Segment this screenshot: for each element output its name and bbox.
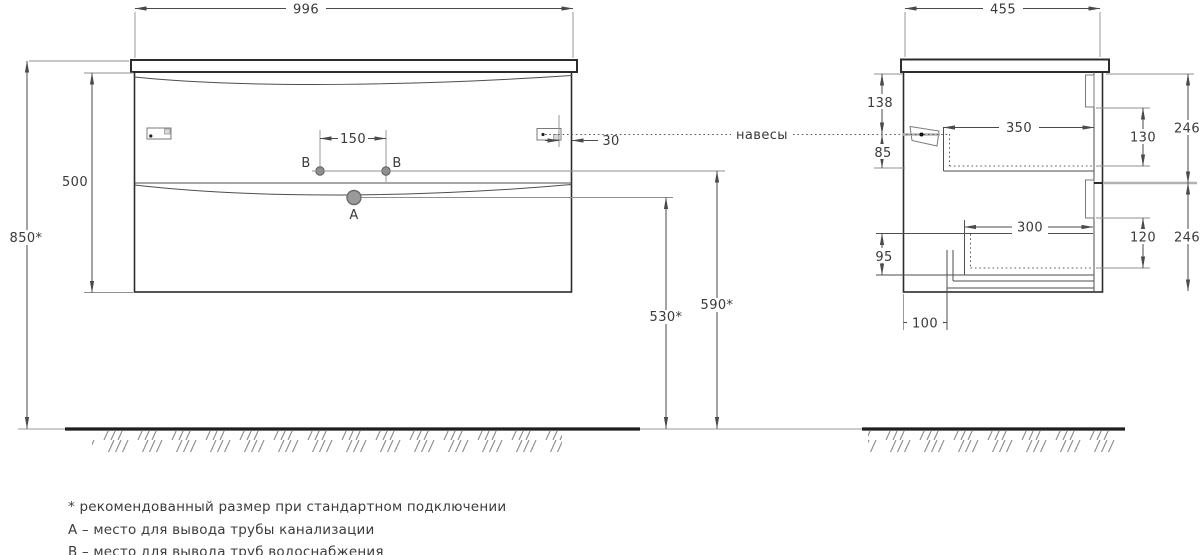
svg-text:530*: 530* [650, 310, 683, 325]
hole-b-left-label: B [301, 156, 310, 171]
hangers-centerline: навесы [545, 128, 903, 143]
hole-b-right-label: B [392, 156, 401, 171]
svg-text:138: 138 [867, 96, 893, 111]
svg-text:850*: 850* [10, 231, 43, 246]
dim-bottom-zone: 95 [867, 234, 900, 276]
svg-text:590*: 590* [701, 298, 734, 313]
dim-upper-front-height: 246 [1106, 74, 1200, 183]
dim-cabinet-height: 500 [62, 73, 133, 293]
footnote-recommended-size: * рекомендованный размер при стандартном… [68, 499, 506, 515]
svg-text:95: 95 [875, 250, 892, 265]
floor-hatching-right [868, 431, 1118, 452]
dim-hanger-drop: 85 [866, 135, 905, 168]
svg-text:150: 150 [340, 132, 366, 147]
hangers-label: навесы [736, 128, 788, 143]
svg-text:350: 350 [1006, 121, 1032, 136]
svg-text:246: 246 [1174, 122, 1200, 137]
svg-text:996: 996 [293, 3, 319, 18]
footnote-a-drain: А – место для вывода трубы канализации [68, 522, 374, 538]
vanity-dimension-drawing: B B A 150 996 500 850* [0, 0, 1200, 555]
technical-drawing-page: B B A 150 996 500 850* [0, 0, 1200, 555]
hole-a-drain [347, 191, 361, 205]
front-view: B B A 150 996 500 850* [6, 1, 737, 429]
hole-a-label: A [349, 208, 358, 223]
svg-text:500: 500 [62, 175, 88, 190]
dim-mount-height: 850* [6, 61, 129, 429]
upper-drawer-front-edge [1086, 75, 1095, 107]
dim-top-gap: 138 [862, 74, 903, 134]
svg-text:120: 120 [1130, 231, 1156, 246]
svg-text:30: 30 [602, 134, 619, 149]
svg-text:455: 455 [990, 3, 1016, 18]
front-countertop [131, 60, 577, 72]
dim-lower-front-height: 246 [1168, 183, 1200, 291]
footnotes: * рекомендованный размер при стандартном… [68, 499, 506, 555]
footnote-b-supply: В – место для вывода труб водоснабжения [68, 544, 384, 555]
side-cabinet-body [904, 72, 1103, 292]
floor-line [18, 429, 1125, 452]
dim-depth: 455 [905, 1, 1100, 57]
dim-lower-inner-height: 120 [1096, 218, 1162, 268]
side-countertop [901, 60, 1109, 73]
svg-text:130: 130 [1130, 131, 1156, 146]
svg-text:85: 85 [874, 146, 891, 161]
dim-pipe-offset: 100 [904, 294, 948, 332]
dim-front-width: 996 [135, 1, 573, 58]
dim-upper-inner-height: 130 [1096, 108, 1162, 166]
lower-drawer-front-edge [1086, 180, 1095, 218]
svg-text:100: 100 [912, 317, 938, 332]
hanger-bracket-left [147, 128, 171, 139]
side-view: 350 300 138 [862, 1, 1200, 332]
front-cabinet-body [135, 72, 572, 292]
svg-text:246: 246 [1174, 231, 1200, 246]
floor-hatching-left [92, 431, 562, 452]
svg-text:300: 300 [1017, 221, 1043, 236]
